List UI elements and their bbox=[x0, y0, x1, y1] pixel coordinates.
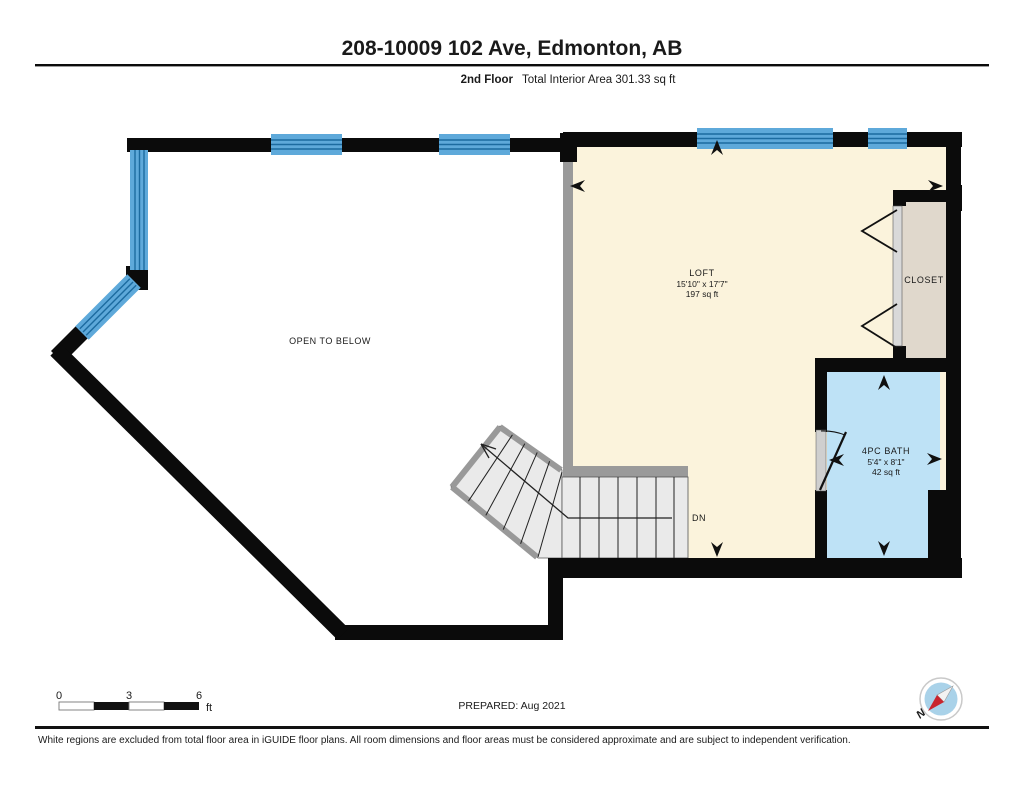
bath-dims: 5'4" x 8'1" bbox=[867, 457, 904, 467]
window bbox=[271, 134, 342, 155]
floorplan-page: 208-10009 102 Ave, Edmonton, AB 2nd Floo… bbox=[0, 0, 1024, 791]
window-diagonal bbox=[80, 279, 136, 335]
window bbox=[868, 128, 907, 149]
header-divider bbox=[35, 64, 989, 66]
scale-unit-label: ft bbox=[206, 702, 212, 714]
scale-tick-3: 3 bbox=[126, 690, 132, 702]
floor-label: 2nd Floor bbox=[461, 74, 514, 86]
scale-tick-6: 6 bbox=[196, 690, 202, 702]
loft-dims: 15'10" x 17'7" bbox=[676, 279, 727, 289]
closet-track bbox=[893, 206, 902, 346]
scale-bar: 0 3 6 ft bbox=[56, 690, 212, 714]
floorplan-drawing: LOFT 15'10" x 17'7" 197 sq ft 4PC BATH 5… bbox=[56, 128, 962, 640]
compass-icon: N bbox=[914, 678, 962, 721]
loft-area: 197 sq ft bbox=[686, 289, 719, 299]
window bbox=[439, 134, 510, 155]
stairs-angled-run bbox=[451, 426, 562, 558]
footer-divider bbox=[35, 726, 989, 729]
stairs-down-label: DN bbox=[692, 513, 706, 523]
stair-top-rail bbox=[563, 466, 688, 477]
loft-open-divider bbox=[563, 147, 573, 470]
prepared-date-label: PREPARED: Aug 2021 bbox=[458, 700, 565, 712]
closet-label: CLOSET bbox=[904, 275, 944, 285]
page-title: 208-10009 102 Ave, Edmonton, AB bbox=[342, 37, 683, 60]
loft-label: LOFT bbox=[689, 268, 714, 278]
disclaimer-text: White regions are excluded from total fl… bbox=[38, 735, 851, 746]
bath-area: 42 sq ft bbox=[872, 467, 901, 477]
bath-label: 4PC BATH bbox=[862, 446, 910, 456]
total-area-label: Total Interior Area 301.33 sq ft bbox=[522, 74, 676, 86]
window-left-vertical bbox=[130, 150, 148, 270]
open-to-below-label: OPEN TO BELOW bbox=[289, 336, 371, 346]
scale-tick-0: 0 bbox=[56, 690, 62, 702]
